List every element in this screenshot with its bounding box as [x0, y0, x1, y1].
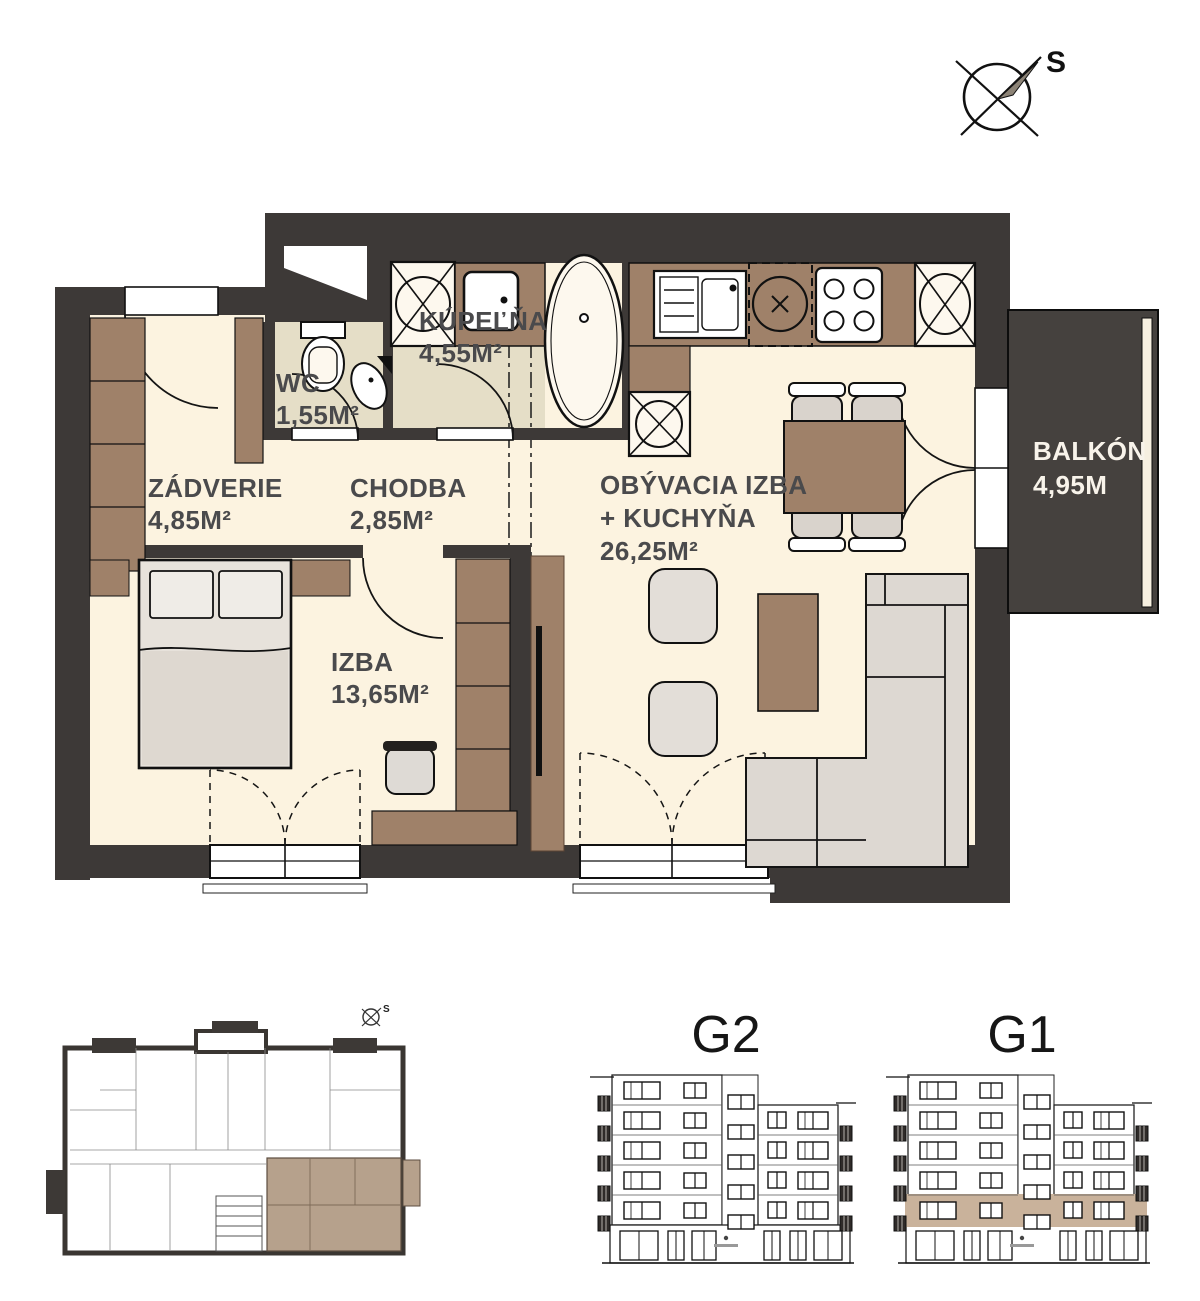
room-area-obyvacia: 26,25M²: [600, 536, 698, 566]
elevation-title-g1: G1: [987, 1006, 1056, 1064]
kitchen-sink: [654, 271, 746, 338]
site-compass-north-label: S: [383, 1004, 390, 1015]
room-label-obyvacia: OBÝVACIA IZBA: [600, 470, 807, 500]
room-label-wc: WC: [276, 368, 320, 398]
stair-core: [216, 1196, 262, 1251]
room-label-kuchyna: + KUCHYŇA: [600, 503, 756, 533]
balcony: BALKÓN 4,95M: [1008, 310, 1158, 613]
room-label-kupelna: KÚPEĽŇA: [419, 306, 547, 336]
room-area-kupelna: 4,55M²: [419, 338, 502, 368]
coffee-table: [758, 594, 818, 711]
room-area-zadverie: 4,85M²: [148, 505, 231, 535]
highlighted-unit: [267, 1158, 401, 1251]
room-area-wc: 1,55M²: [276, 400, 359, 430]
elevation-title-g2: G2: [691, 1006, 760, 1064]
tv-panel: [531, 556, 564, 851]
room-area-balkon: 4,95M: [1033, 470, 1107, 500]
elevation-g1: [886, 1075, 1152, 1263]
tv: [536, 626, 542, 776]
elevation-g2: [590, 1075, 856, 1263]
room-label-izba: IZBA: [331, 647, 393, 677]
bathroom-door: [437, 428, 513, 440]
apartment-floor-plan-sheet: BALKÓN 4,95M: [0, 0, 1200, 1301]
site-compass: S: [362, 1004, 390, 1026]
floor-plan: BALKÓN 4,95M: [55, 213, 1158, 903]
desk: [372, 811, 517, 845]
compass-north-label: S: [1046, 46, 1066, 79]
entry-door: [125, 287, 218, 315]
bathtub: [545, 255, 623, 427]
bedroom-chair: [383, 741, 437, 794]
room-area-chodba: 2,85M²: [350, 505, 433, 535]
compass: S: [956, 46, 1066, 136]
compass-needle: [998, 62, 1038, 99]
room-area-izba: 13,65M²: [331, 679, 429, 709]
stove: [816, 268, 882, 342]
dishwasher: [629, 392, 690, 456]
room-label-balkon: BALKÓN: [1033, 436, 1147, 466]
room-label-chodba: CHODBA: [350, 473, 467, 503]
fridge: [915, 263, 975, 346]
room-label-zadverie: ZÁDVERIE: [148, 473, 283, 503]
site-plan: S: [46, 1004, 420, 1253]
